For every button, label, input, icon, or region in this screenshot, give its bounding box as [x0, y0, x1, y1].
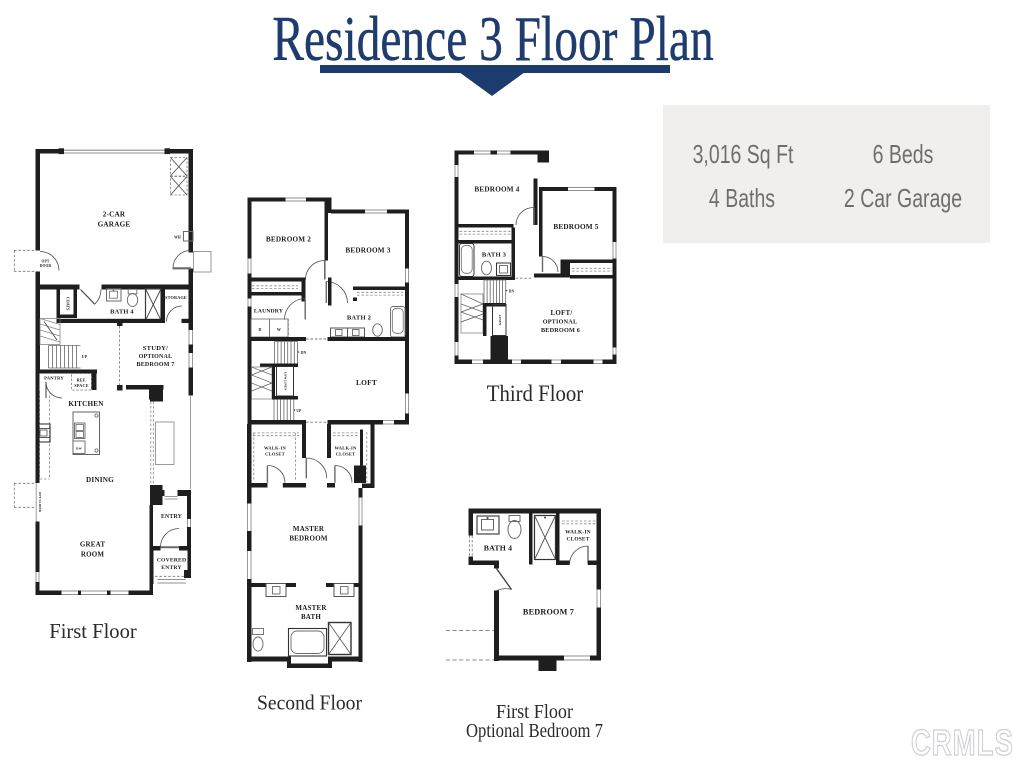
svg-text:LOFT/: LOFT/ [550, 309, 573, 317]
svg-text:MASTER: MASTER [295, 604, 327, 612]
svg-text:LAUNDRY: LAUNDRY [254, 309, 283, 315]
svg-text:Second Floor: Second Floor [257, 691, 362, 715]
svg-text:WALK-IN: WALK-IN [264, 446, 287, 451]
svg-text:WALK-IN: WALK-IN [565, 530, 591, 536]
svg-text:D: D [258, 327, 261, 332]
svg-text:WALK-IN: WALK-IN [334, 446, 357, 451]
svg-text:WH: WH [174, 236, 181, 240]
svg-text:STORAGE: STORAGE [165, 295, 187, 300]
svg-text:SPACE: SPACE [74, 383, 88, 388]
svg-text:UP: UP [82, 355, 88, 359]
svg-text:BATH 4: BATH 4 [110, 309, 134, 316]
svg-text:LOW LINEN: LOW LINEN [284, 372, 288, 391]
svg-text:DN: DN [301, 351, 307, 355]
svg-text:GREAT: GREAT [80, 541, 106, 549]
svg-text:CLOSET: CLOSET [566, 537, 589, 543]
svg-text:BATH 3: BATH 3 [482, 252, 507, 259]
svg-text:KITCHEN: KITCHEN [68, 400, 104, 408]
svg-text:BEDROOM 3: BEDROOM 3 [345, 247, 390, 255]
svg-text:CLOSET: CLOSET [265, 452, 285, 457]
svg-text:ENTRY: ENTRY [161, 514, 183, 520]
svg-text:DINING: DINING [86, 476, 114, 484]
svg-text:2-CAR: 2-CAR [103, 211, 126, 219]
svg-text:OPT SLIDER: OPT SLIDER [38, 492, 42, 513]
svg-text:REF.: REF. [77, 378, 87, 383]
svg-text:Optional Bedroom 7: Optional Bedroom 7 [466, 721, 603, 742]
svg-text:ENTRY: ENTRY [161, 565, 181, 571]
svg-text:LINEN: LINEN [498, 315, 502, 326]
svg-text:OPT: OPT [42, 260, 50, 264]
svg-text:BEDROOM 7: BEDROOM 7 [137, 362, 175, 368]
svg-text:First Floor: First Floor [49, 619, 137, 643]
svg-text:COVERED: COVERED [157, 558, 186, 564]
svg-text:BEDROOM 6: BEDROOM 6 [541, 327, 580, 334]
svg-text:GARAGE: GARAGE [98, 221, 131, 229]
svg-text:BATH 2: BATH 2 [347, 315, 372, 322]
svg-text:DW: DW [76, 447, 83, 451]
svg-text:BATH: BATH [301, 613, 321, 621]
svg-text:DOOR: DOOR [40, 264, 52, 268]
svg-text:BEDROOM 4: BEDROOM 4 [474, 186, 519, 194]
svg-text:PANTRY: PANTRY [44, 376, 64, 381]
svg-text:First Floor: First Floor [496, 702, 573, 723]
svg-text:BEDROOM: BEDROOM [289, 535, 328, 543]
svg-text:BEDROOM 7: BEDROOM 7 [523, 608, 574, 617]
svg-text:MASTER: MASTER [293, 525, 325, 533]
svg-text:ROOM: ROOM [81, 551, 105, 559]
svg-text:CLOSET: CLOSET [336, 452, 356, 457]
svg-text:DN: DN [509, 290, 515, 294]
svg-text:UP: UP [296, 409, 302, 413]
svg-text:OPTIONAL: OPTIONAL [139, 354, 173, 360]
svg-text:BATH 4: BATH 4 [484, 544, 513, 553]
svg-text:COATS: COATS [66, 297, 71, 311]
svg-text:Third Floor: Third Floor [487, 381, 584, 406]
svg-text:LOFT: LOFT [356, 378, 377, 387]
svg-text:W: W [277, 327, 281, 332]
svg-text:BEDROOM 2: BEDROOM 2 [266, 236, 311, 244]
svg-text:STUDY/: STUDY/ [143, 345, 168, 352]
svg-text:OPTIONAL: OPTIONAL [543, 319, 578, 326]
svg-text:BEDROOM 5: BEDROOM 5 [553, 223, 598, 231]
